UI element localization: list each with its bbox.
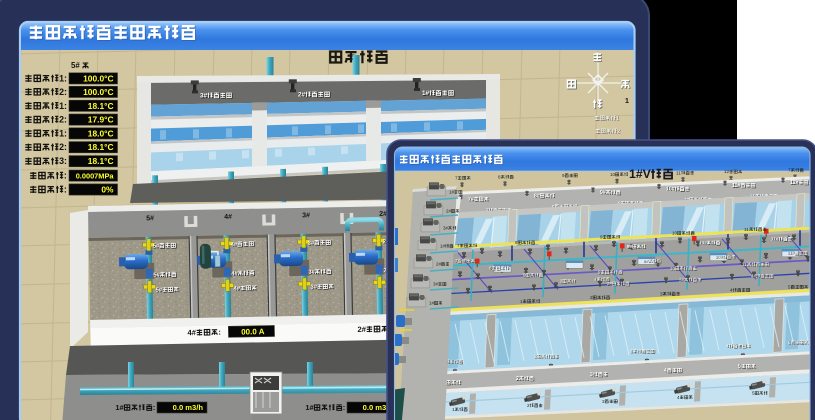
svg-text:0%: 0% xyxy=(101,185,114,195)
svg-text:4: 4 xyxy=(726,343,729,348)
svg-text:1:: 1: xyxy=(59,128,67,138)
svg-text:9#: 9# xyxy=(627,244,633,249)
svg-text:3: 3 xyxy=(590,372,593,378)
svg-text:2: 2 xyxy=(590,295,593,300)
svg-text:7#: 7# xyxy=(468,197,474,203)
svg-text:8#: 8# xyxy=(534,193,540,199)
svg-text::: : xyxy=(218,328,221,337)
svg-text:1: 1 xyxy=(520,299,523,304)
svg-text:2#: 2# xyxy=(357,325,366,334)
svg-text:9: 9 xyxy=(562,173,565,178)
svg-text:4#: 4# xyxy=(187,328,196,337)
svg-text:7: 7 xyxy=(455,176,458,181)
svg-text:4#: 4# xyxy=(231,271,238,277)
svg-text:1:: 1: xyxy=(59,73,67,83)
svg-text:100.0°C: 100.0°C xyxy=(83,87,113,97)
svg-text:18.0°C: 18.0°C xyxy=(88,128,114,138)
svg-text:11#: 11# xyxy=(732,183,740,189)
svg-text:4: 4 xyxy=(677,395,680,400)
svg-text:5: 5 xyxy=(752,391,755,396)
svg-text:8: 8 xyxy=(515,240,518,245)
svg-text:0.0 m3/h: 0.0 m3/h xyxy=(173,403,204,412)
svg-text:4#: 4# xyxy=(234,286,241,292)
svg-text:3: 3 xyxy=(660,291,663,296)
svg-text:7: 7 xyxy=(788,168,791,173)
svg-text:11#: 11# xyxy=(787,251,795,256)
svg-text:8: 8 xyxy=(498,175,501,180)
svg-text:3#: 3# xyxy=(308,241,315,247)
svg-text:00.0 A: 00.0 A xyxy=(241,327,265,336)
svg-text:1#: 1# xyxy=(449,190,455,195)
svg-text:10: 10 xyxy=(672,231,678,236)
svg-text:100.0°C: 100.0°C xyxy=(83,73,113,83)
svg-text:2#: 2# xyxy=(379,211,387,218)
svg-text:5#: 5# xyxy=(156,288,163,294)
svg-text:17.9°C: 17.9°C xyxy=(88,115,114,125)
svg-text:11: 11 xyxy=(676,170,681,175)
svg-text:5: 5 xyxy=(788,285,791,290)
svg-text:4: 4 xyxy=(730,288,733,293)
svg-text:11: 11 xyxy=(742,262,747,267)
svg-text:10: 10 xyxy=(610,172,616,177)
svg-text:3: 3 xyxy=(602,399,605,404)
svg-text:1: 1 xyxy=(625,98,629,105)
svg-text:9#: 9# xyxy=(600,190,606,196)
svg-text:1#: 1# xyxy=(440,244,446,249)
svg-text:3#: 3# xyxy=(311,285,318,291)
svg-text:4: 4 xyxy=(664,368,667,374)
svg-text:7: 7 xyxy=(457,243,460,248)
svg-text:3#: 3# xyxy=(433,282,439,287)
svg-text:2: 2 xyxy=(534,354,537,359)
svg-text:2: 2 xyxy=(617,129,620,135)
svg-text:1: 1 xyxy=(616,116,619,122)
svg-text:2:: 2: xyxy=(59,142,67,152)
svg-text:5: 5 xyxy=(738,364,741,370)
svg-text:11: 11 xyxy=(744,227,749,232)
svg-text:10: 10 xyxy=(670,266,676,271)
svg-text:4#: 4# xyxy=(231,242,238,248)
svg-text:4#: 4# xyxy=(751,273,757,278)
svg-text:9#: 9# xyxy=(643,258,649,263)
svg-text:4#: 4# xyxy=(224,214,232,221)
svg-text:5: 5 xyxy=(788,340,791,345)
svg-text::: : xyxy=(64,185,67,195)
svg-text:12: 12 xyxy=(724,169,730,174)
svg-text:2#: 2# xyxy=(436,262,442,267)
svg-text:1:: 1: xyxy=(59,101,67,111)
svg-text:0.0007MPa: 0.0007MPa xyxy=(76,172,115,181)
svg-text:9: 9 xyxy=(600,235,603,240)
svg-text:1#: 1# xyxy=(429,301,435,306)
svg-text:3#: 3# xyxy=(443,226,449,231)
svg-text:2:: 2: xyxy=(59,87,67,97)
svg-text:18.1°C: 18.1°C xyxy=(88,142,114,152)
svg-text:3#: 3# xyxy=(200,93,208,100)
svg-text:10#: 10# xyxy=(666,187,675,193)
svg-text::: : xyxy=(64,171,67,181)
svg-text:1#: 1# xyxy=(422,90,430,97)
svg-text:3#: 3# xyxy=(679,277,685,282)
svg-text:3#: 3# xyxy=(308,270,315,276)
svg-text:1#V: 1#V xyxy=(629,167,652,181)
svg-text:1: 1 xyxy=(452,407,455,412)
svg-text:3: 3 xyxy=(630,349,633,354)
svg-text:2: 2 xyxy=(527,403,530,408)
svg-text:2#: 2# xyxy=(298,92,306,99)
svg-text:2#: 2# xyxy=(446,209,452,214)
svg-text:3:: 3: xyxy=(59,156,67,166)
svg-text:5#: 5# xyxy=(153,244,160,250)
svg-text:12#: 12# xyxy=(790,180,799,186)
svg-text::: : xyxy=(343,403,346,412)
svg-text:5#: 5# xyxy=(153,273,160,279)
svg-text:18.1°C: 18.1°C xyxy=(88,156,114,166)
svg-text:1#: 1# xyxy=(305,403,314,412)
svg-text:2:: 2: xyxy=(59,115,67,125)
svg-text:3#: 3# xyxy=(302,212,310,219)
svg-text:2: 2 xyxy=(516,376,519,382)
svg-text:11#: 11# xyxy=(771,236,779,241)
svg-text:1#: 1# xyxy=(115,403,124,412)
svg-text:18.1°C: 18.1°C xyxy=(88,101,114,111)
svg-text::: : xyxy=(153,403,156,412)
svg-text:5#: 5# xyxy=(146,215,154,222)
svg-text:10#: 10# xyxy=(715,254,723,259)
svg-text:5#: 5# xyxy=(71,61,80,70)
svg-text:10#: 10# xyxy=(699,240,707,245)
